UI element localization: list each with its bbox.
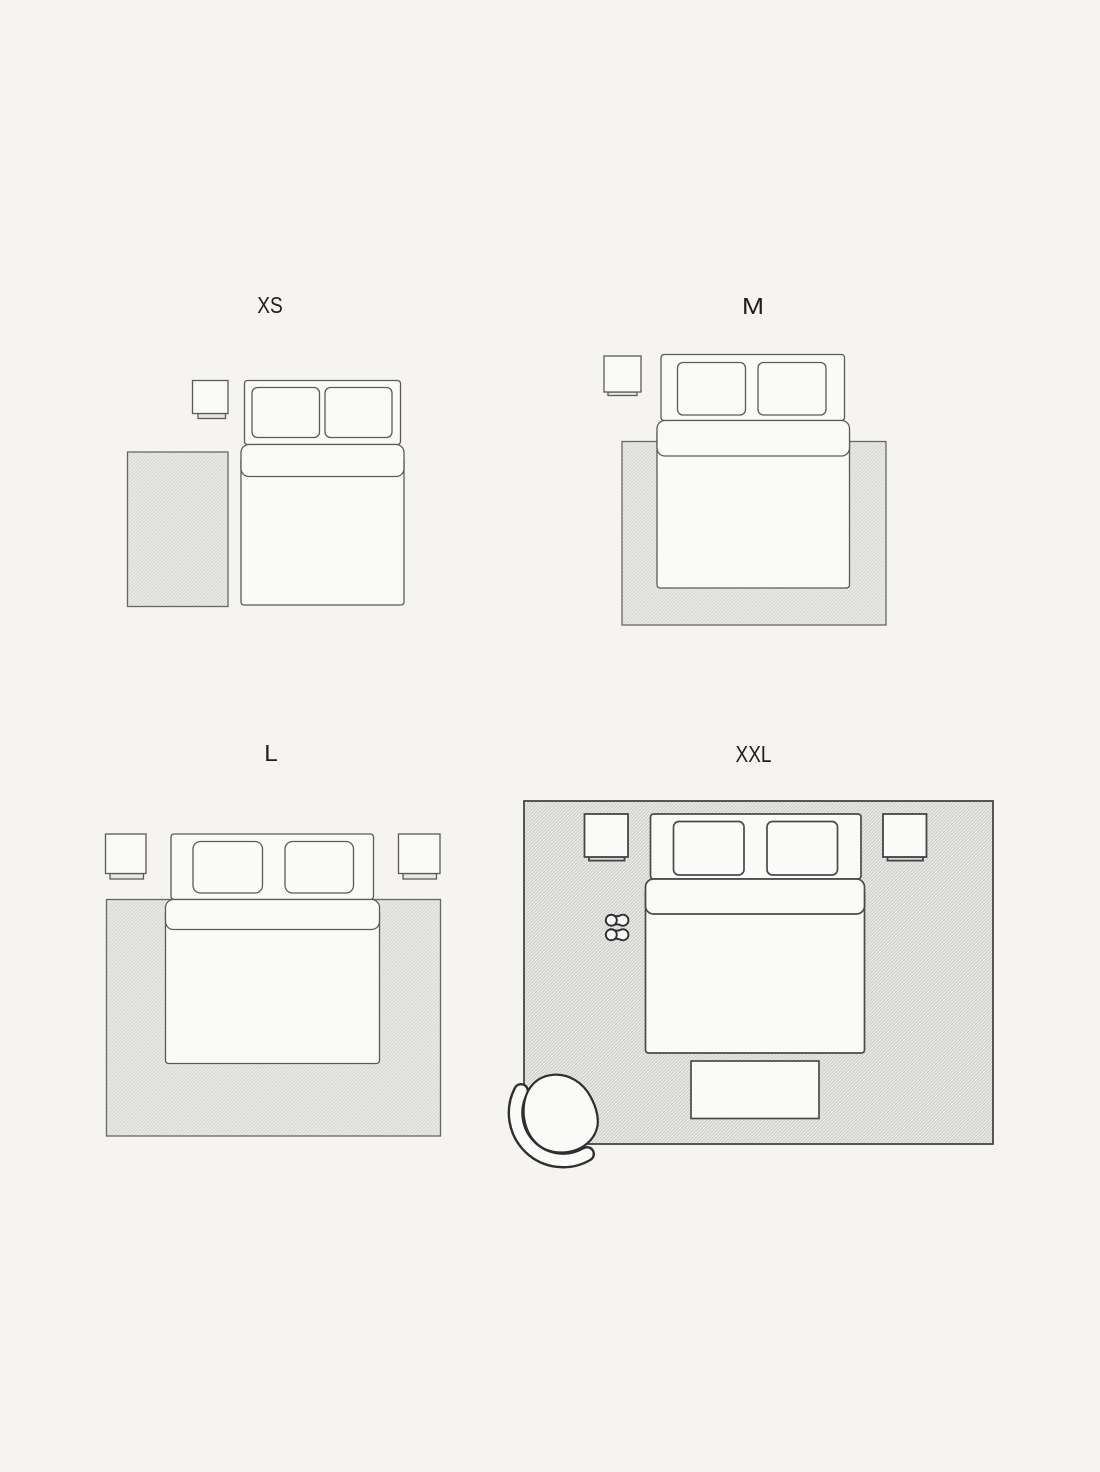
- svg-text:XXL: XXL: [736, 741, 772, 767]
- svg-text:L: L: [264, 740, 278, 766]
- svg-text:M: M: [742, 293, 764, 319]
- svg-text:XS: XS: [257, 292, 283, 318]
